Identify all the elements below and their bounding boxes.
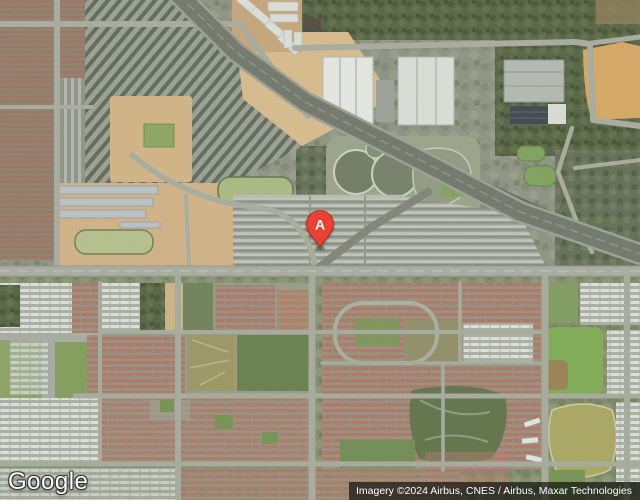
attribution-text: Imagery ©2024 Airbus, CNES / Airbus, Max…: [356, 485, 632, 497]
map-viewport[interactable]: A Google Imagery ©2024 Airbus, CNES / Ai…: [0, 0, 640, 500]
attribution-bar: Imagery ©2024 Airbus, CNES / Airbus, Max…: [349, 482, 640, 500]
satellite-imagery: A: [0, 0, 640, 500]
google-logo[interactable]: Google: [8, 468, 88, 496]
marker-label: A: [315, 217, 325, 233]
